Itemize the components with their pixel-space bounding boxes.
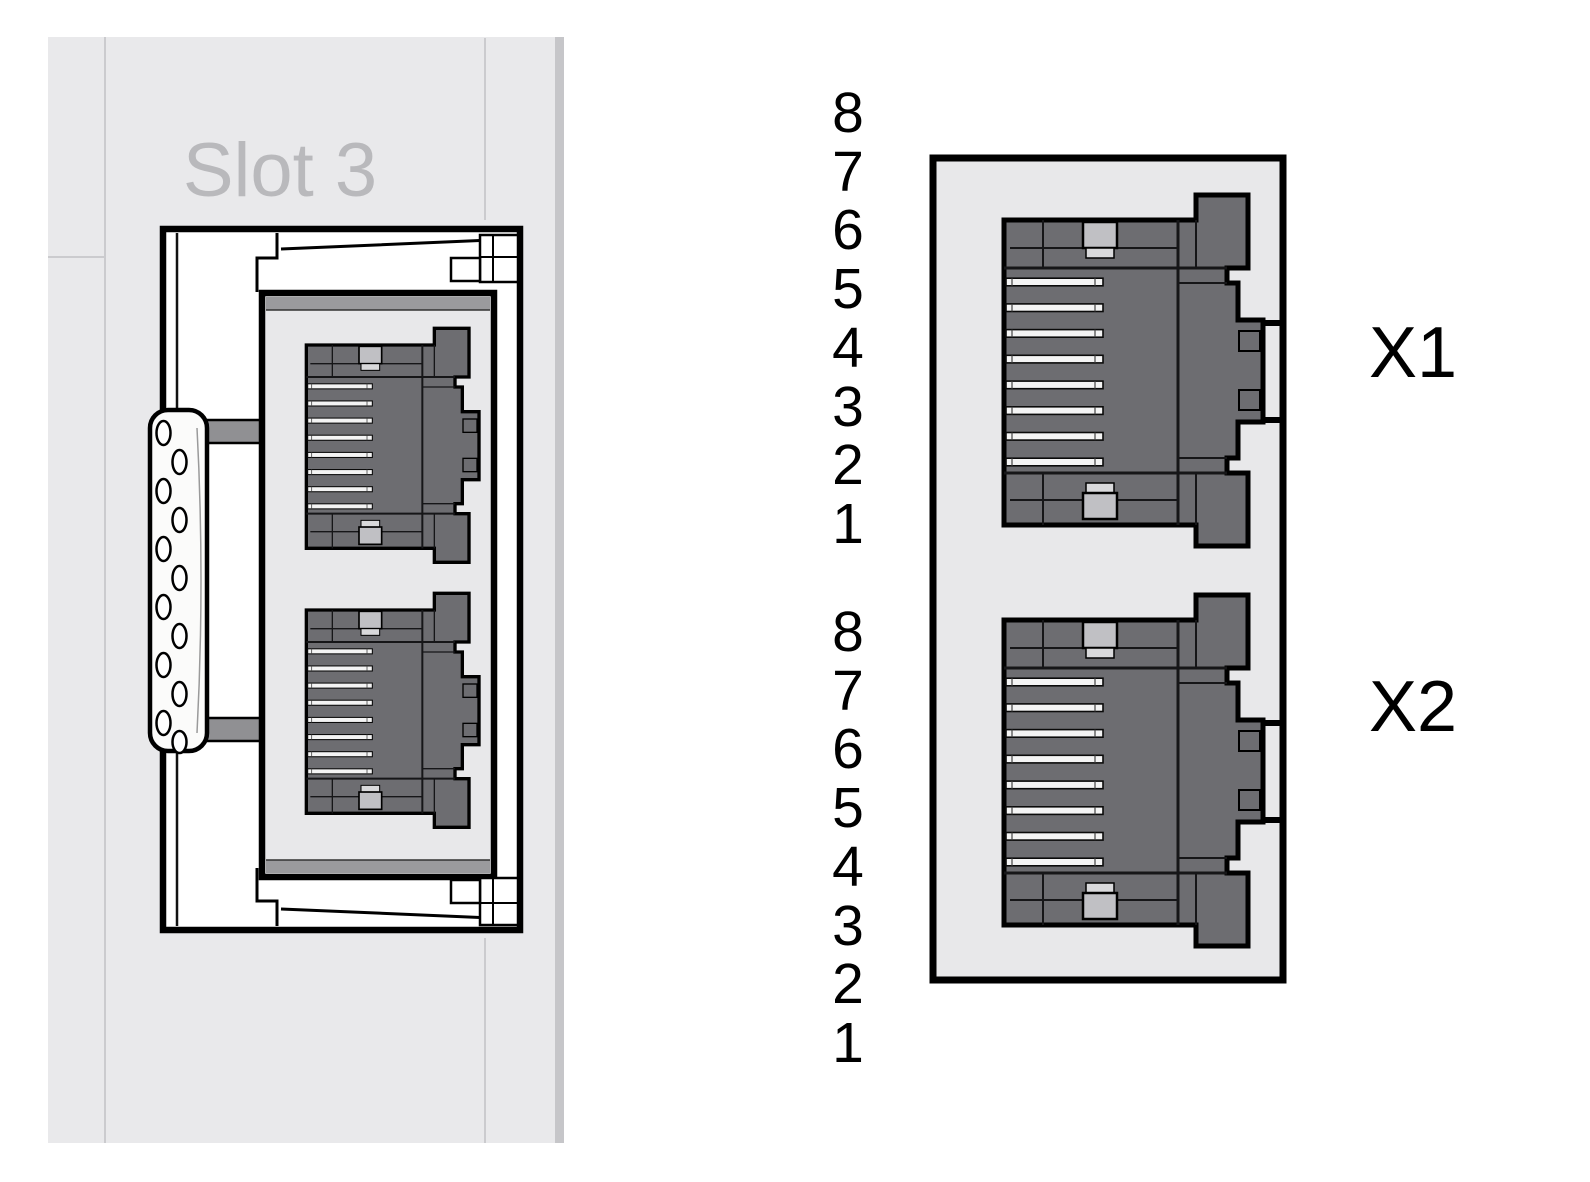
port-label-x1: X1 — [1369, 317, 1457, 390]
pin-number: 3 — [818, 378, 878, 437]
pin-number: 8 — [818, 84, 878, 143]
header-link-bar-bottom — [205, 718, 264, 741]
header-link-bar-top — [205, 420, 264, 443]
pin-number: 8 — [818, 603, 878, 662]
detail-rj45-port-x1 — [1004, 195, 1263, 546]
port-diagram-drawing — [0, 0, 1590, 1182]
pin-number: 6 — [818, 201, 878, 260]
pin-number: 1 — [818, 1014, 878, 1073]
pin-number: 5 — [818, 260, 878, 319]
pin-number: 7 — [818, 662, 878, 721]
pin-numbers-x1: 8 7 6 5 4 3 2 1 — [818, 84, 878, 554]
port-bay-top-bar — [266, 297, 490, 310]
pin-number: 4 — [818, 838, 878, 897]
module-drawing — [150, 229, 520, 930]
pin-number: 4 — [818, 319, 878, 378]
module-rj45-port-top — [306, 328, 479, 562]
pin-number: 7 — [818, 143, 878, 202]
pin-number: 6 — [818, 720, 878, 779]
pin-number: 5 — [818, 779, 878, 838]
detail-rj45-port-x2 — [1004, 595, 1263, 946]
pin-number: 1 — [818, 495, 878, 554]
pin-header-strip — [150, 410, 207, 753]
port-detail-drawing — [933, 158, 1284, 980]
pin-number: 2 — [818, 436, 878, 495]
port-label-x2: X2 — [1369, 671, 1457, 744]
pin-numbers-x2: 8 7 6 5 4 3 2 1 — [818, 603, 878, 1073]
pin-number: 2 — [818, 955, 878, 1014]
module-rj45-port-bottom — [306, 593, 479, 827]
pin-number: 3 — [818, 897, 878, 956]
port-bay-bottom-bar — [266, 860, 490, 873]
diagram-stage: Slot 3 — [0, 0, 1590, 1182]
